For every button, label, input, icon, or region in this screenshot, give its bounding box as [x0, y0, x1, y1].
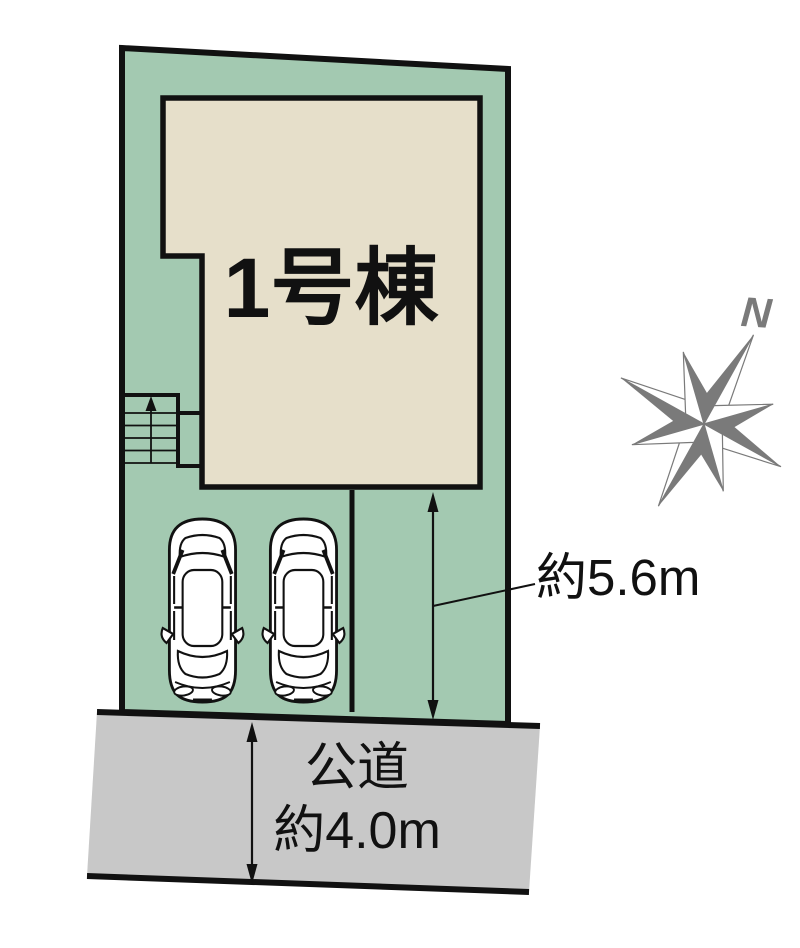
car-top-view-icon	[263, 519, 345, 702]
building-label: 1号棟	[206, 244, 456, 332]
road-width-label: 約4.0m	[237, 800, 477, 863]
car-top-view-icon	[162, 519, 244, 702]
road-name-label: 公道	[237, 737, 477, 800]
site-plan-canvas: 1号棟 約5.6m 公道 約4.0m N	[0, 0, 800, 948]
road-label: 公道 約4.0m	[237, 737, 477, 863]
compass-north-label: N	[739, 290, 772, 336]
depth-dimension-label: 約5.6m	[536, 551, 700, 605]
compass-rose-icon	[621, 335, 781, 506]
